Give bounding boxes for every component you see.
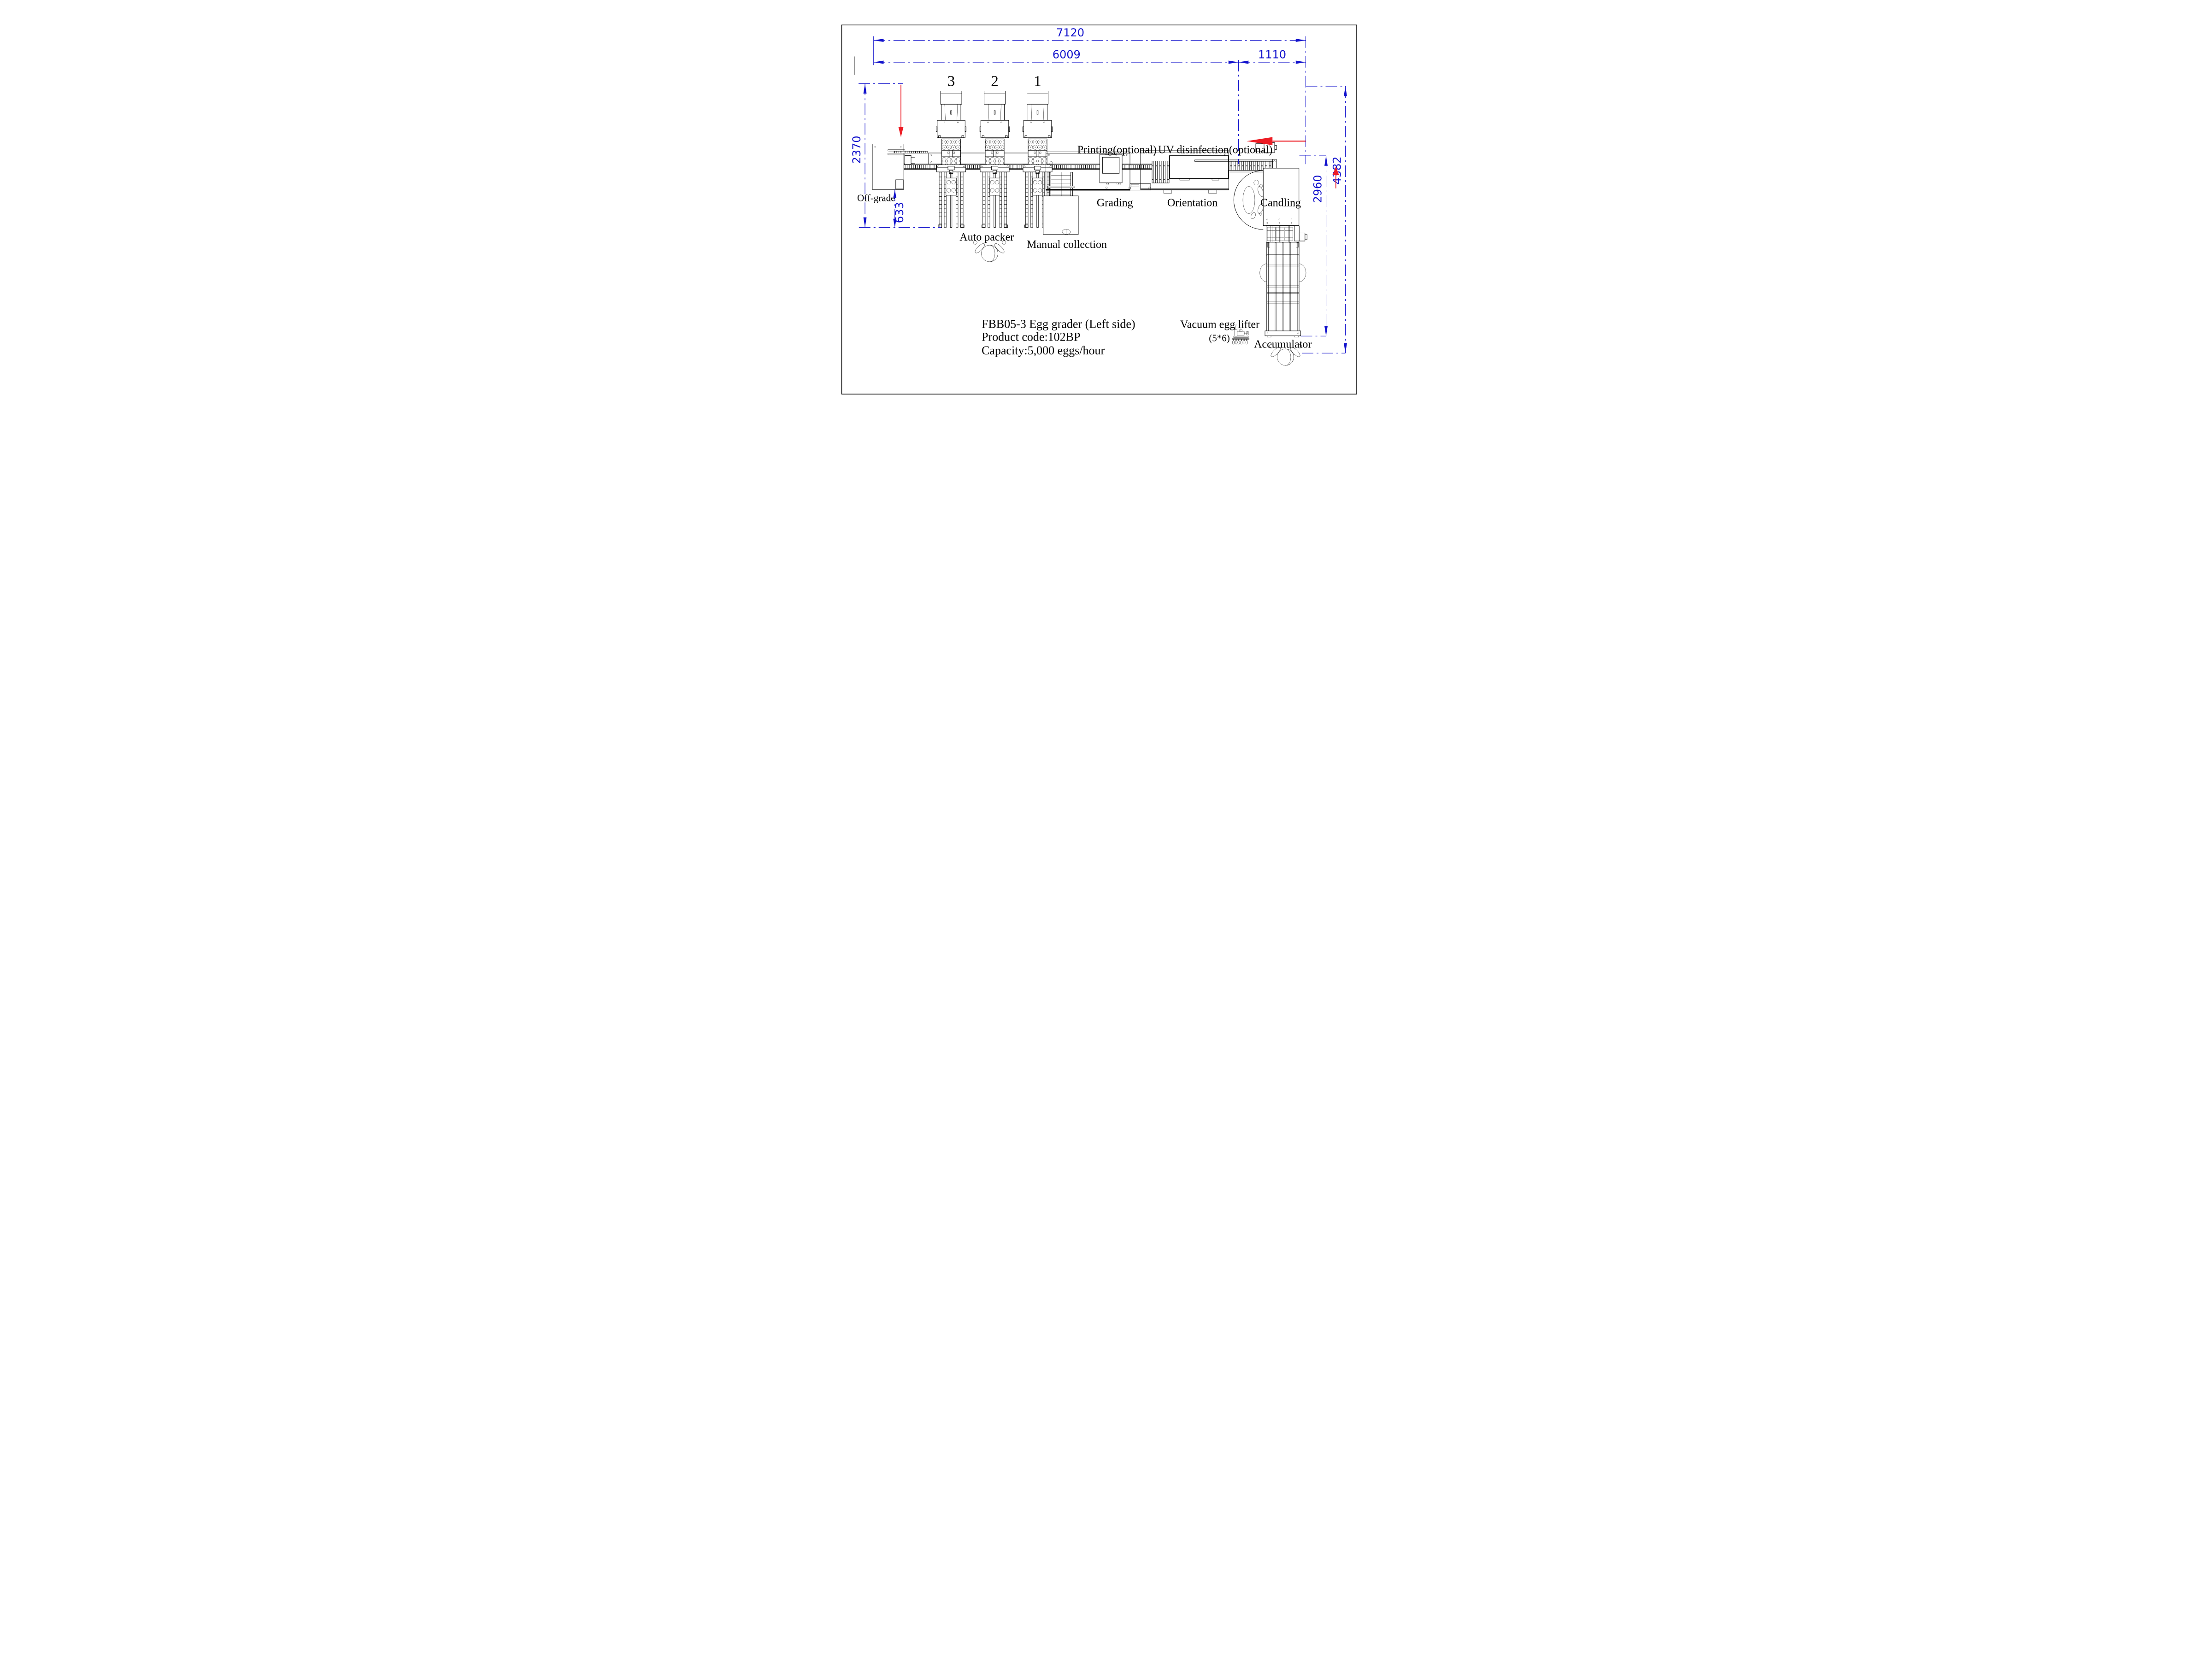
title-line1: FBB05-3 Egg grader (Left side)	[982, 317, 1135, 330]
label-vacuum-lifter: Vacuum egg lifter	[1180, 318, 1259, 330]
packer-number-1: 1	[1034, 73, 1041, 89]
dim-text-1110: 1110	[1258, 48, 1286, 61]
dim-text-7120: 7120	[1056, 26, 1084, 39]
label-manual-collection: Manual collection	[1027, 239, 1107, 251]
cad-canvas: 3 2 1	[829, 0, 1382, 415]
label-vacuum-size: (5*6)	[1209, 333, 1230, 344]
label-auto-packer: Auto packer	[959, 231, 1014, 243]
dim-text-2370: 2370	[850, 135, 863, 164]
label-printing: Printing(optional)	[1077, 144, 1157, 156]
drawing-page: 3 2 1	[829, 0, 1382, 415]
dim-text-2960: 2960	[1312, 175, 1324, 203]
packer-number-2: 2	[991, 73, 999, 89]
label-orientation: Orientation	[1167, 197, 1218, 209]
printing-unit	[1100, 153, 1122, 184]
uv-disinfection-box	[1170, 156, 1229, 180]
dim-text-6009: 6009	[1053, 48, 1081, 61]
title-line3: Capacity:5,000 eggs/hour	[982, 344, 1105, 357]
label-candling: Candling	[1260, 197, 1301, 209]
label-off-grade: Off-grade	[857, 192, 895, 203]
packer-number-3: 3	[947, 73, 955, 89]
label-uv: UV disinfection(optional)	[1158, 144, 1272, 156]
dim-text-633: 633	[893, 202, 906, 223]
label-accumulator: Accumulator	[1254, 339, 1312, 351]
label-grading: Grading	[1097, 197, 1133, 209]
title-line2: Product code:102BP	[982, 330, 1081, 344]
